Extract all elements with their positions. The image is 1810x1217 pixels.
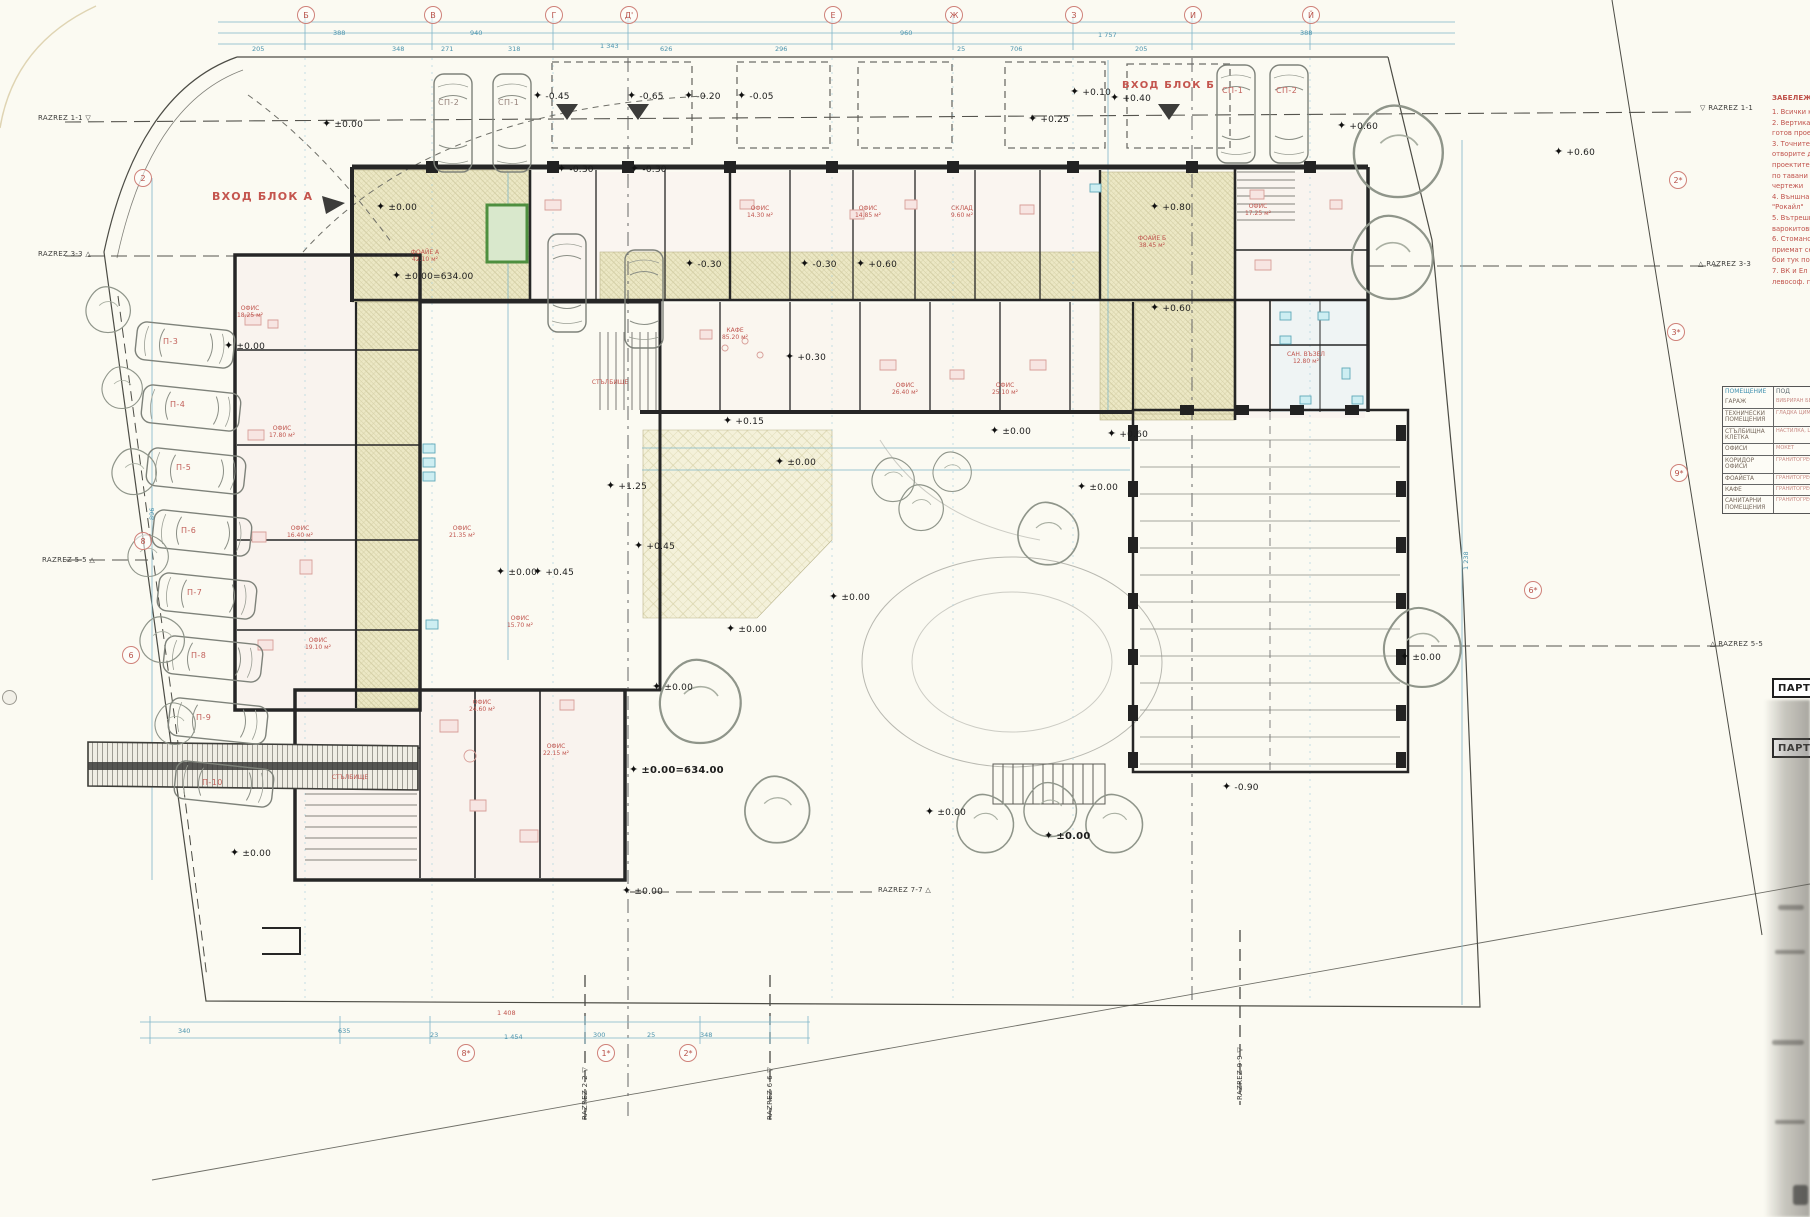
room-label: ФОАЙЕ Б 38.45 м² (1138, 236, 1166, 249)
level-marker-icon: ✦ (1337, 119, 1346, 132)
elevation-marker: ✦+1.25 (606, 479, 647, 492)
room-label: ОФИС 22.15 м² (543, 744, 569, 757)
notes-header: ЗАБЕЛЕЖКИ: (1772, 94, 1810, 102)
grid-bubble: З (1065, 6, 1083, 24)
dimension-value: 23 (430, 1031, 438, 1039)
parking-space-label: П-7 (187, 588, 202, 597)
elevation-marker: ✦±0.00 (652, 680, 693, 693)
elevation-value: ±0.00 (1089, 483, 1118, 493)
room-label: САН. ВЪЗЕЛ 12.80 м² (1287, 352, 1325, 365)
grid-bubble: 8* (457, 1044, 475, 1062)
section-marker: △ RAZREZ 5-5 (1710, 640, 1763, 648)
room-label: ОФИС 21.35 м² (449, 526, 475, 539)
legend-floor-finish: ГРАНИТОГРЕС (1774, 474, 1810, 484)
elevation-marker: ✦±0.00 (1044, 829, 1090, 842)
canopy-outlines (552, 62, 1230, 148)
room-label: ФОАЙЕ А 42.10 м² (411, 250, 439, 263)
level-marker-icon: ✦ (376, 200, 385, 213)
section-marker: RAZREZ 3-3 △ (38, 250, 91, 258)
legend-room-name: ТЕХНИЧЕСКИ ПОМЕЩЕНИЯ (1723, 409, 1774, 426)
section-marker: RAZREZ 5-5 △ (42, 556, 95, 564)
legend-table: ПОМЕЩЕНИЕ ПОД ГАРАЖВИБРИРАН БЕТОНТЕХНИЧЕ… (1722, 386, 1810, 514)
note-line: отворите да се вземат (1772, 149, 1810, 160)
elevation-value: +0.60 (1566, 148, 1595, 158)
dimension-value: 300 (593, 1031, 605, 1039)
elevation-marker: ✦±0.00 (322, 117, 363, 130)
elevation-marker: ✦±0.00 (1400, 650, 1441, 663)
note-line: 5. Вътрешни мазилки - (1772, 213, 1810, 224)
level-marker-icon: ✦ (230, 846, 239, 859)
parter-box-1: ПАРТЕР (1772, 678, 1810, 698)
dimension-value: 271 (441, 45, 453, 53)
grid-bubble: 2* (1669, 171, 1687, 189)
elevation-marker: ✦+0.15 (723, 414, 764, 427)
elevation-marker: ✦±0.00 (1077, 480, 1118, 493)
scan-smudge (1775, 1120, 1805, 1124)
elevation-marker: ✦±0.00 (230, 846, 271, 859)
level-marker-icon: ✦ (392, 269, 401, 282)
elevation-value: +0.60 (1119, 430, 1148, 440)
elevation-marker: ✦±0.00 (990, 424, 1031, 437)
dimension-value: 348 (392, 45, 404, 53)
grid-bubble: В (424, 6, 442, 24)
legend-row: САНИТАРНИ ПОМЕЩЕНИЯГРАНИТОГРЕС (1723, 495, 1810, 513)
dimension-value: 340 (178, 1027, 190, 1035)
elevation-value: ±0.00 (236, 342, 265, 352)
entrance-block-b-label: ВХОД БЛОК Б (1122, 80, 1215, 91)
elevation-marker: ✦+0.25 (1028, 112, 1069, 125)
legend-floor-finish: ВИБРИРАН БЕТОН (1774, 397, 1810, 407)
level-marker-icon: ✦ (1222, 780, 1231, 793)
level-marker-icon: ✦ (800, 257, 809, 270)
elevation-marker: ✦±0.00 (622, 884, 663, 897)
room-label: ОФИС 15.70 м² (507, 616, 533, 629)
note-line: проектите на доставчика (1772, 160, 1810, 171)
dimension-value: 626 (660, 45, 672, 53)
dimension-value: 1 343 (600, 42, 619, 50)
elevation-value: ±0.00=634.00 (641, 765, 723, 776)
parking-space-label: П-5 (176, 463, 191, 472)
elevation-value: -0.30 (569, 165, 593, 175)
note-line: 1. Всички коти са в метри (1772, 107, 1810, 118)
elevation-marker: ✦-0.30 (630, 162, 667, 175)
elevation-value: -0.90 (1234, 783, 1258, 793)
dimension-value: 348 (700, 1031, 712, 1039)
level-marker-icon: ✦ (1554, 145, 1563, 158)
elevation-value: +0.80 (1162, 203, 1191, 213)
level-marker-icon: ✦ (1044, 829, 1053, 842)
elevation-value: -0.30 (697, 260, 721, 270)
section-marker: ▽ RAZREZ 1-1 (1700, 104, 1753, 112)
ramp (88, 742, 418, 790)
dimension-value: 1 454 (504, 1033, 523, 1041)
grid-bubble: 8 (134, 532, 152, 550)
level-marker-icon: ✦ (829, 590, 838, 603)
parking-space-label: П-6 (181, 526, 196, 535)
elevation-marker: ✦+0.60 (856, 257, 897, 270)
level-marker-icon: ✦ (723, 414, 732, 427)
elevation-value: ±0.00 (1412, 653, 1441, 663)
room-label: ОФИС 14.30 м² (747, 206, 773, 219)
elevation-value: +0.30 (797, 353, 826, 363)
elevation-value: ±0.00 (1002, 427, 1031, 437)
scan-smudge (1775, 950, 1805, 954)
level-marker-icon: ✦ (634, 539, 643, 552)
note-line: "Рокайл" (1772, 202, 1810, 213)
parking-space-label: П-10 (202, 778, 223, 787)
room-label: СКЛАД 9.60 м² (951, 206, 973, 219)
elevation-marker: ✦±0.00=634.00 (629, 763, 724, 776)
dimension-value: 388 (333, 29, 345, 37)
level-marker-icon: ✦ (496, 565, 505, 578)
notes-block: ЗАБЕЛЕЖКИ: 1. Всички коти са в метри2. В… (1772, 94, 1810, 287)
elevation-value: -0.65 (639, 92, 663, 102)
elevation-marker: ✦+0.10 (1070, 85, 1111, 98)
elevation-value: +0.10 (1082, 88, 1111, 98)
room-label: КАФЕ 85.20 м² (722, 328, 748, 341)
elevation-marker: ✦-0.30 (800, 257, 837, 270)
level-marker-icon: ✦ (925, 805, 934, 818)
elevation-value: -0.20 (696, 92, 720, 102)
elevation-value: +0.45 (545, 568, 574, 578)
note-line: 7. ВК и Ел инсталации виж (1772, 266, 1810, 277)
legend-row: КАФЕГРАНИТОГРЕС (1723, 484, 1810, 495)
level-marker-icon: ✦ (775, 455, 784, 468)
parking-space-label: П-3 (163, 337, 178, 346)
scan-smudge (1772, 1040, 1804, 1045)
elevation-value: ±0.00=634.00 (404, 272, 473, 282)
elevation-value: -0.30 (642, 165, 666, 175)
elevation-value: ±0.00 (841, 593, 870, 603)
section-marker: RAZREZ 6-6 ▽ (766, 1067, 774, 1120)
level-marker-icon: ✦ (684, 89, 693, 102)
parking-space-label: П-9 (196, 713, 211, 722)
legend-floor-finish: ГРАНИТОГРЕС (1774, 496, 1810, 513)
entrance-block-a-label: ВХОД БЛОК А (212, 190, 313, 203)
elevation-value: ±0.00 (388, 203, 417, 213)
elevation-marker: ✦-0.20 (684, 89, 721, 102)
elevation-marker: ✦±0.00=634.00 (392, 269, 473, 282)
note-line: левософ. проекти (1772, 277, 1810, 288)
elevation-marker: ✦-0.65 (627, 89, 664, 102)
elevation-value: ±0.00 (634, 887, 663, 897)
elevation-marker: ✦+0.30 (785, 350, 826, 363)
grid-bubble: 9* (1670, 464, 1688, 482)
floor-plan-page: ВХОД БЛОК А ВХОД БЛОК Б ЗАБЕЛЕЖКИ: 1. Вс… (0, 0, 1810, 1217)
elevation-marker: ✦+0.60 (1337, 119, 1378, 132)
legend-room-name: СТЪЛБИЩНА КЛЕТКА (1723, 427, 1774, 444)
legend-header-row: ПОМЕЩЕНИЕ ПОД (1723, 387, 1810, 397)
legend-room-name: ГАРАЖ (1723, 397, 1774, 407)
elevation-value: -0.05 (749, 92, 773, 102)
legend-room-name: КАФЕ (1723, 485, 1774, 495)
dimension-value: 388 (1300, 29, 1312, 37)
legend-row: КОРИДОР ОФИСИГРАНИТОГРЕС (1723, 455, 1810, 473)
grid-bubble: Й (1302, 6, 1320, 24)
elevation-value: +0.45 (646, 542, 675, 552)
legend-room-name: КОРИДОР ОФИСИ (1723, 456, 1774, 473)
legend-row: СТЪЛБИЩНА КЛЕТКАНАСТИЛКА, ЦОКЪЛ (1723, 426, 1810, 444)
note-line: 3. Точните размери на (1772, 139, 1810, 150)
grid-bubble: 6* (1524, 581, 1542, 599)
level-marker-icon: ✦ (322, 117, 331, 130)
elevation-value: ±0.00 (664, 683, 693, 693)
level-marker-icon: ✦ (557, 162, 566, 175)
level-marker-icon: ✦ (1400, 650, 1409, 663)
elevation-value: +0.60 (1349, 122, 1378, 132)
garage-block (1128, 405, 1408, 772)
grid-bubble: 1* (597, 1044, 615, 1062)
elevation-marker: ✦-0.30 (557, 162, 594, 175)
level-marker-icon: ✦ (533, 89, 542, 102)
elevation-marker: ✦±0.00 (376, 200, 417, 213)
elevation-value: -0.45 (545, 92, 569, 102)
note-line: приемат се с латексови (1772, 245, 1810, 256)
parking-space-label: СП-2 (1276, 86, 1297, 95)
dimension-value: 25 (647, 1031, 655, 1039)
note-line: готов проект (1772, 128, 1810, 139)
elevation-value: +0.40 (1122, 94, 1151, 104)
elevation-value: +0.25 (1040, 115, 1069, 125)
room-label: ОФИС 17.80 м² (269, 426, 295, 439)
level-marker-icon: ✦ (1110, 91, 1119, 104)
elevation-marker: ✦-0.30 (685, 257, 722, 270)
elevation-marker: ✦±0.00 (829, 590, 870, 603)
room-label: ОФИС 24.60 м² (469, 700, 495, 713)
elevation-marker: ✦+0.80 (1150, 200, 1191, 213)
elevation-value: ±0.00 (787, 458, 816, 468)
note-line: 6. Стоманобетонови елем. (1772, 234, 1810, 245)
section-marker: RAZREZ 2-2 ▽ (581, 1067, 589, 1120)
level-marker-icon: ✦ (224, 339, 233, 352)
room-label: ОФИС 19.10 м² (305, 638, 331, 651)
elevation-marker: ✦+0.45 (634, 539, 675, 552)
legend-row: ГАРАЖВИБРИРАН БЕТОН (1723, 397, 1810, 407)
grid-bubble: 6 (122, 646, 140, 664)
elevation-marker: ✦+0.60 (1150, 301, 1191, 314)
elevation-value: +0.15 (735, 417, 764, 427)
room-label: ОФИС 26.40 м² (892, 383, 918, 396)
elevation-marker: ✦-0.45 (533, 89, 570, 102)
parking-space-label: СП-1 (1222, 86, 1243, 95)
grid-bubble: 2* (679, 1044, 697, 1062)
dimension-value: 205 (1135, 45, 1147, 53)
grid-bubble: 2 (134, 169, 152, 187)
grid-bubble: Ж (945, 6, 963, 24)
note-line: 2. Вертикалната планировка (1772, 118, 1810, 129)
note-line: варокитови (1772, 224, 1810, 235)
level-marker-icon: ✦ (1077, 480, 1086, 493)
dimension-value: 706 (1010, 45, 1022, 53)
level-marker-icon: ✦ (726, 622, 735, 635)
elevation-value: ±0.00 (334, 120, 363, 130)
dimension-value: 25 (957, 45, 965, 53)
dimension-value: 896 (148, 508, 156, 520)
legend-floor-finish: ГРАНИТОГРЕС (1774, 456, 1810, 473)
level-marker-icon: ✦ (1150, 200, 1159, 213)
note-line: по тавани виж отделни (1772, 171, 1810, 182)
dimension-value: 940 (470, 29, 482, 37)
elevation-marker: ✦+0.60 (1554, 145, 1595, 158)
grid-bubble: Г (545, 6, 563, 24)
level-marker-icon: ✦ (737, 89, 746, 102)
room-label: ОФИС 25.10 м² (992, 383, 1018, 396)
level-marker-icon: ✦ (1150, 301, 1159, 314)
elevation-value: ±0.00 (937, 808, 966, 818)
level-marker-icon: ✦ (1028, 112, 1037, 125)
level-marker-icon: ✦ (990, 424, 999, 437)
legend-row: ТЕХНИЧЕСКИ ПОМЕЩЕНИЯГЛАДКА ЦИМ. ЗАМАЗКА (1723, 408, 1810, 426)
room-label: СТЪЛБИЩЕ (332, 775, 368, 782)
note-line: бои тук посочени (1772, 255, 1810, 266)
dimension-value: 1 757 (1098, 31, 1117, 39)
legend-header-room: ПОМЕЩЕНИЕ (1723, 387, 1774, 397)
dimension-value: 635 (338, 1027, 350, 1035)
level-marker-icon: ✦ (856, 257, 865, 270)
elevation-marker: ✦+0.60 (1107, 427, 1148, 440)
note-line: 4. Външна мазилка тип (1772, 192, 1810, 203)
level-marker-icon: ✦ (1070, 85, 1079, 98)
elevation-value: ±0.00 (508, 568, 537, 578)
dimension-value: 960 (900, 29, 912, 37)
room-label: ОФИС 18.25 м² (237, 306, 263, 319)
legend-floor-finish: ГЛАДКА ЦИМ. ЗАМАЗКА (1774, 409, 1810, 426)
section-marker: RAZREZ 7-7 △ (878, 886, 931, 894)
room-label: ОФИС 17.25 м² (1245, 204, 1271, 217)
punch-hole (2, 690, 17, 705)
level-marker-icon: ✦ (785, 350, 794, 363)
grid-bubble: Е (824, 6, 842, 24)
dimension-value: 296 (775, 45, 787, 53)
grid-bubble: Д' (620, 6, 638, 24)
legend-floor-finish: МОКЕТ (1774, 444, 1810, 454)
elevation-marker: ✦±0.00 (925, 805, 966, 818)
parking-space-label: СП-2 (438, 98, 459, 107)
legend-row: ОФИСИМОКЕТ (1723, 443, 1810, 454)
elevation-value: -0.30 (812, 260, 836, 270)
dimension-value: 205 (252, 45, 264, 53)
level-marker-icon: ✦ (629, 763, 638, 776)
section-marker: RAZREZ 9-9 ▽ (1236, 1047, 1244, 1100)
level-marker-icon: ✦ (630, 162, 639, 175)
section-marker: RAZREZ 1-1 ▽ (38, 114, 91, 122)
elevation-marker: ✦-0.05 (737, 89, 774, 102)
legend-room-name: САНИТАРНИ ПОМЕЩЕНИЯ (1723, 496, 1774, 513)
room-label: ОФИС 14.85 м² (855, 206, 881, 219)
elevation-value: ±0.00 (738, 625, 767, 635)
elevation-value: ±0.00 (1056, 831, 1090, 842)
elevation-value: +1.25 (618, 482, 647, 492)
elevation-marker: ✦±0.00 (496, 565, 537, 578)
elevator-shaft (487, 205, 527, 262)
room-label: СТЪЛБИЩЕ (592, 380, 628, 387)
elevation-value: ±0.00 (242, 849, 271, 859)
level-marker-icon: ✦ (652, 680, 661, 693)
elevation-marker: ✦±0.00 (224, 339, 265, 352)
grid-bubble: 3* (1667, 323, 1685, 341)
parking-space-label: П-4 (170, 400, 185, 409)
room-label: ОФИС 16.40 м² (287, 526, 313, 539)
elevation-marker: ✦±0.00 (775, 455, 816, 468)
elevation-marker: ✦-0.90 (1222, 780, 1259, 793)
level-marker-icon: ✦ (685, 257, 694, 270)
level-marker-icon: ✦ (622, 884, 631, 897)
legend-row: ФОАЙЕТАГРАНИТОГРЕС (1723, 473, 1810, 484)
parking-space-label: П-8 (191, 651, 206, 660)
elevation-value: +0.60 (868, 260, 897, 270)
dimension-value: 318 (508, 45, 520, 53)
legend-header-floor: ПОД (1774, 387, 1810, 397)
level-marker-icon: ✦ (627, 89, 636, 102)
parking-space-label: СП-1 (498, 98, 519, 107)
scan-shadow-band (1764, 700, 1810, 1217)
elevation-marker: ✦±0.00 (726, 622, 767, 635)
elevation-value: +0.60 (1162, 304, 1191, 314)
scan-smudge (1793, 1185, 1808, 1205)
legend-floor-finish: НАСТИЛКА, ЦОКЪЛ (1774, 427, 1810, 444)
legend-room-name: ФОАЙЕТА (1723, 474, 1774, 484)
legend-room-name: ОФИСИ (1723, 444, 1774, 454)
level-marker-icon: ✦ (606, 479, 615, 492)
dimension-value: 1 408 (497, 1009, 516, 1017)
elevation-marker: ✦+0.45 (533, 565, 574, 578)
page-corner-curve (0, 6, 96, 128)
grid-bubble: Б (297, 6, 315, 24)
floor-plan-drawing (0, 0, 1810, 1217)
dimension-value: 1 238 (1462, 551, 1470, 570)
section-marker: △ RAZREZ 3-3 (1698, 260, 1751, 268)
legend-floor-finish: ГРАНИТОГРЕС (1774, 485, 1810, 495)
level-marker-icon: ✦ (1107, 427, 1116, 440)
scan-smudge (1778, 905, 1804, 910)
elevation-marker: ✦+0.40 (1110, 91, 1151, 104)
grid-bubble: И (1184, 6, 1202, 24)
note-line: чертежи (1772, 181, 1810, 192)
